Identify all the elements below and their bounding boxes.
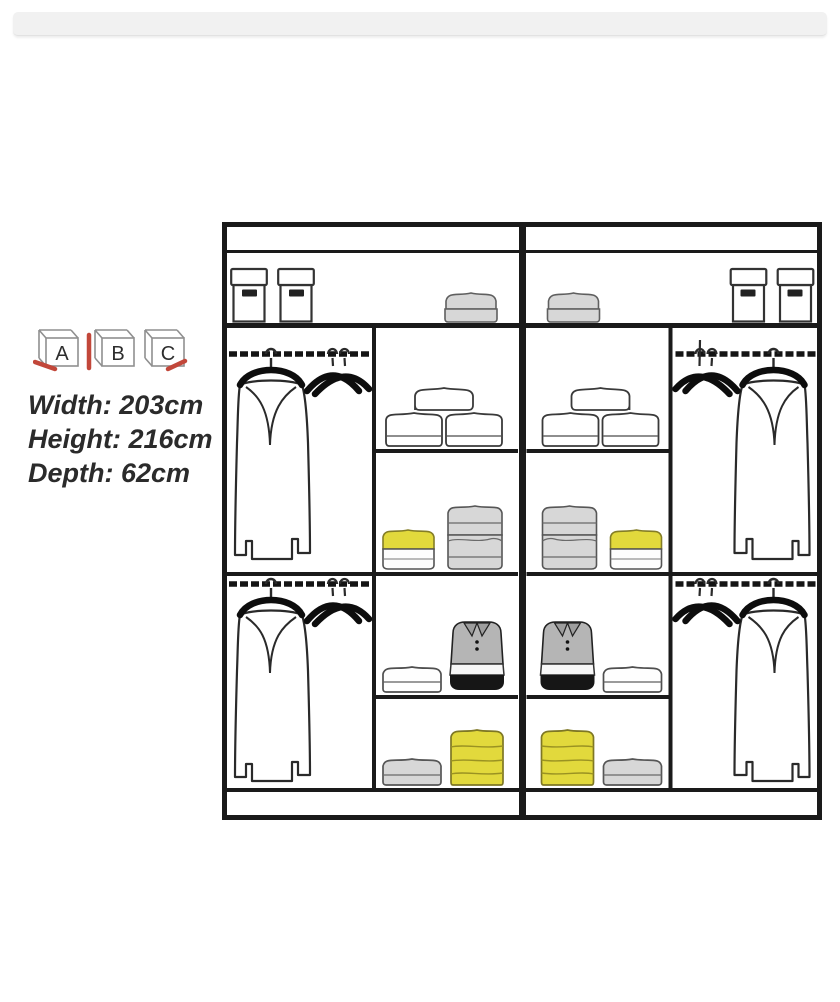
duvet-icon	[544, 289, 602, 323]
storage-box-icon	[776, 265, 814, 323]
folded-gray-icon	[380, 753, 444, 787]
wardrobe-product-image: A B C Width: 203cm Height: 216cm Depth: …	[0, 0, 840, 1002]
hanging-garment-icon	[734, 349, 809, 559]
shelf-compartment-pillows	[376, 328, 518, 453]
folded-gray-stack-icon	[538, 501, 600, 571]
wardrobe-left-unit	[227, 227, 519, 815]
folded-yellow-stack-icon	[448, 725, 506, 787]
config-option-b-label: B	[111, 343, 124, 365]
config-option-a-label: A	[55, 343, 69, 365]
shelf-compartment-folded-3	[376, 699, 518, 788]
wardrobe-diagram	[222, 222, 822, 820]
dimensions-text: Width: 203cm Height: 216cm Depth: 62cm	[28, 388, 223, 490]
folded-white-icon	[600, 662, 664, 694]
storage-boxes	[729, 265, 814, 323]
hanging-scene-lower	[672, 576, 817, 788]
top-bar	[13, 12, 827, 36]
top-shelf-compartment	[526, 253, 818, 328]
shelf-compartment-folded-2	[526, 576, 668, 699]
storage-box-icon	[230, 265, 268, 323]
storage-box-icon	[277, 265, 315, 323]
base-panel	[526, 792, 818, 815]
polo-shirt-icon	[538, 618, 596, 694]
hanging-row-lower	[227, 576, 372, 788]
polo-shirt-icon	[448, 618, 506, 694]
hanging-garment-icon	[235, 349, 310, 559]
hanging-row-upper	[227, 328, 372, 576]
wardrobe-right-unit	[526, 227, 818, 815]
storage-box-icon	[729, 265, 767, 323]
spec-panel: A B C Width: 203cm Height: 216cm Depth: …	[28, 328, 223, 490]
width-label: Width: 203cm	[28, 388, 223, 422]
config-option-c-label: C	[161, 343, 175, 365]
center-divider	[519, 227, 526, 815]
hanging-row-upper	[672, 328, 817, 576]
folded-yellow-icon	[380, 525, 438, 571]
shelf-compartment-folded-2	[376, 576, 518, 699]
folded-white-icon	[380, 662, 444, 694]
config-options-icon: A B C	[33, 328, 189, 372]
hanging-scene-upper	[227, 328, 372, 572]
shelf-compartment-pillows	[526, 328, 668, 453]
hanging-scene-lower	[227, 576, 372, 788]
storage-boxes	[230, 265, 315, 323]
empty-hangers-icon	[307, 579, 369, 624]
hanging-section	[672, 328, 817, 788]
top-shelf-compartment	[227, 253, 519, 328]
hanging-garment-icon	[734, 579, 809, 781]
depth-label: Depth: 62cm	[28, 456, 223, 490]
shelf-compartment-folded-1	[376, 453, 518, 576]
folded-yellow-icon	[606, 525, 664, 571]
shelf-compartment-folded-3	[526, 699, 668, 788]
shelf-section	[526, 328, 672, 788]
base-panel	[227, 792, 519, 815]
shelf-compartment-folded-1	[526, 453, 668, 576]
shelf-section	[372, 328, 518, 788]
empty-hangers-icon	[307, 349, 369, 394]
pillow-stack-icon	[539, 384, 661, 448]
pillow-stack-icon	[383, 384, 505, 448]
empty-hangers-icon	[675, 340, 737, 394]
top-panel	[227, 227, 519, 253]
hanging-garment-icon	[235, 579, 310, 781]
folded-gray-stack-icon	[444, 501, 506, 571]
empty-hangers-icon	[675, 579, 737, 624]
hanging-section	[227, 328, 372, 788]
config-option-c: C	[145, 330, 185, 369]
hanging-scene-upper	[672, 328, 817, 572]
top-panel	[526, 227, 818, 253]
folded-gray-icon	[600, 753, 664, 787]
duvet-icon	[442, 289, 500, 323]
folded-yellow-stack-icon	[538, 725, 596, 787]
config-option-a: A	[35, 330, 78, 369]
hanging-row-lower	[672, 576, 817, 788]
height-label: Height: 216cm	[28, 422, 223, 456]
config-option-b: B	[89, 330, 134, 368]
